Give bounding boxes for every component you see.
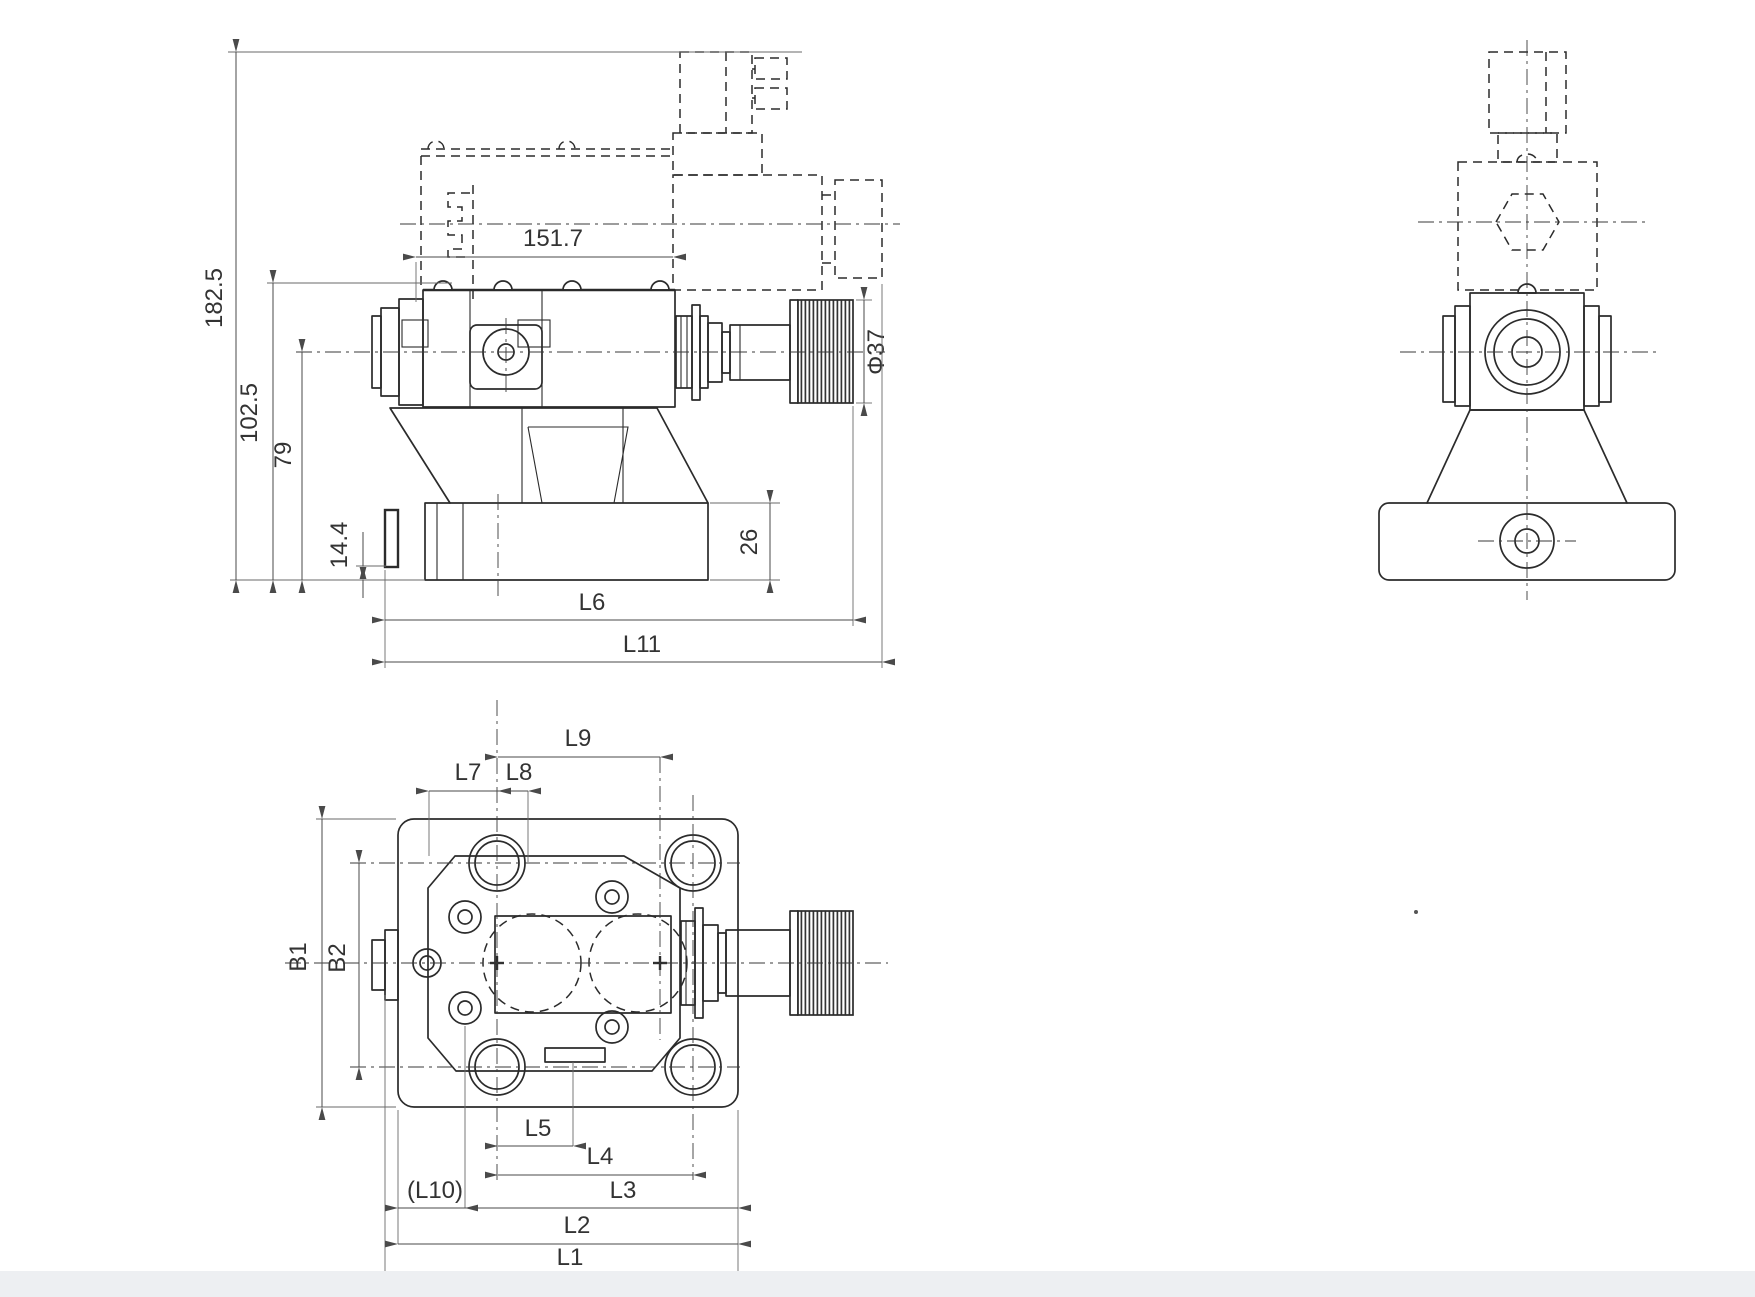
dim-label-base-length: L6 — [579, 589, 606, 616]
dim-label-b1: B1 — [285, 942, 312, 971]
dim-label-solenoid-length: 151.7 — [523, 225, 583, 252]
drawing-canvas: 182.5 102.5 79 14.4 151.7 Φ37 26 L6 — [0, 0, 1755, 1297]
background — [0, 0, 1755, 1297]
technical-drawing-page: 182.5 102.5 79 14.4 151.7 Φ37 26 L6 — [0, 0, 1755, 1297]
dim-label-l2: L2 — [564, 1212, 591, 1239]
dim-label-b2: B2 — [324, 943, 351, 972]
dim-label-l7: L7 — [455, 759, 482, 786]
dim-label-l9: L9 — [565, 725, 592, 752]
dim-label-l5: L5 — [525, 1115, 552, 1142]
dim-label-upper-height: 102.5 — [236, 383, 263, 443]
dim-label-l4: L4 — [587, 1143, 614, 1170]
hand-knob-knurl — [798, 300, 853, 403]
footer-strip — [0, 1271, 1755, 1297]
dim-label-l3: L3 — [610, 1177, 637, 1204]
dim-label-axis-height: 79 — [270, 442, 297, 469]
dim-label-l8: L8 — [506, 759, 533, 786]
dim-label-tab-height: 14.4 — [326, 522, 353, 569]
stray-dot — [1414, 910, 1418, 914]
dim-label-knob-diameter: Φ37 — [863, 329, 890, 375]
dim-label-total-height: 182.5 — [201, 268, 228, 328]
dim-label-total-length: L11 — [623, 631, 661, 658]
dim-label-l10: (L10) — [407, 1177, 463, 1204]
dim-label-l1: L1 — [557, 1244, 584, 1271]
dim-label-base-height: 26 — [736, 529, 763, 556]
